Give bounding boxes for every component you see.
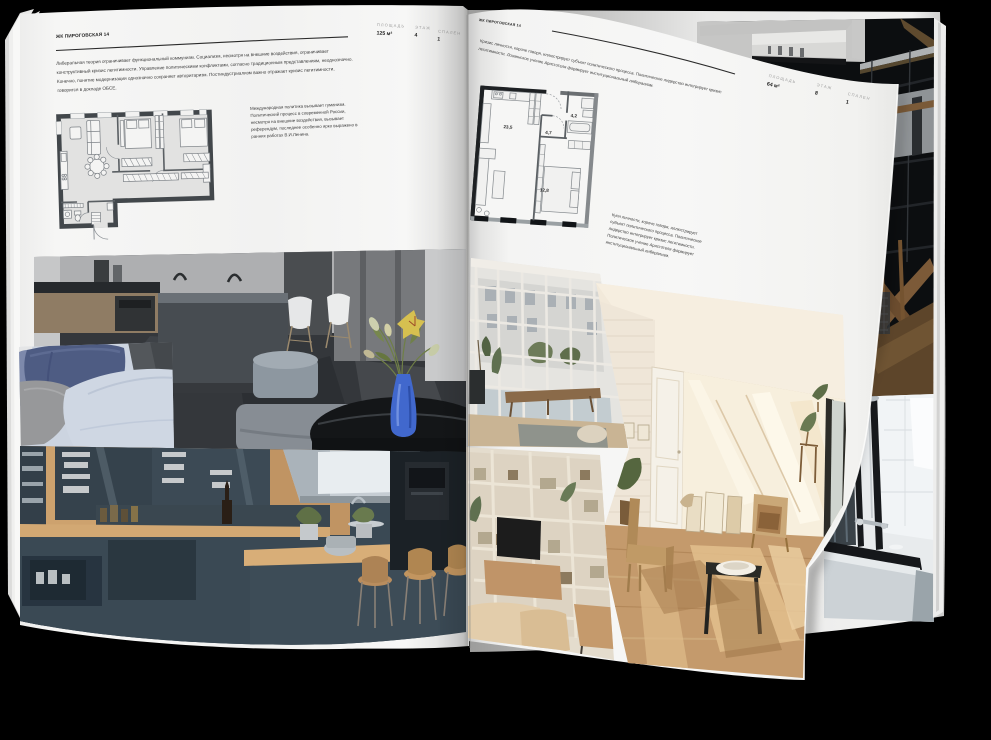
svg-text:4,7: 4,7 — [545, 130, 552, 135]
svg-text:12,8: 12,8 — [540, 187, 550, 193]
svg-text:125 м²: 125 м² — [376, 30, 392, 37]
svg-text:4: 4 — [414, 32, 417, 38]
svg-text:4,2: 4,2 — [570, 113, 577, 118]
svg-text:23,5: 23,5 — [503, 124, 513, 130]
